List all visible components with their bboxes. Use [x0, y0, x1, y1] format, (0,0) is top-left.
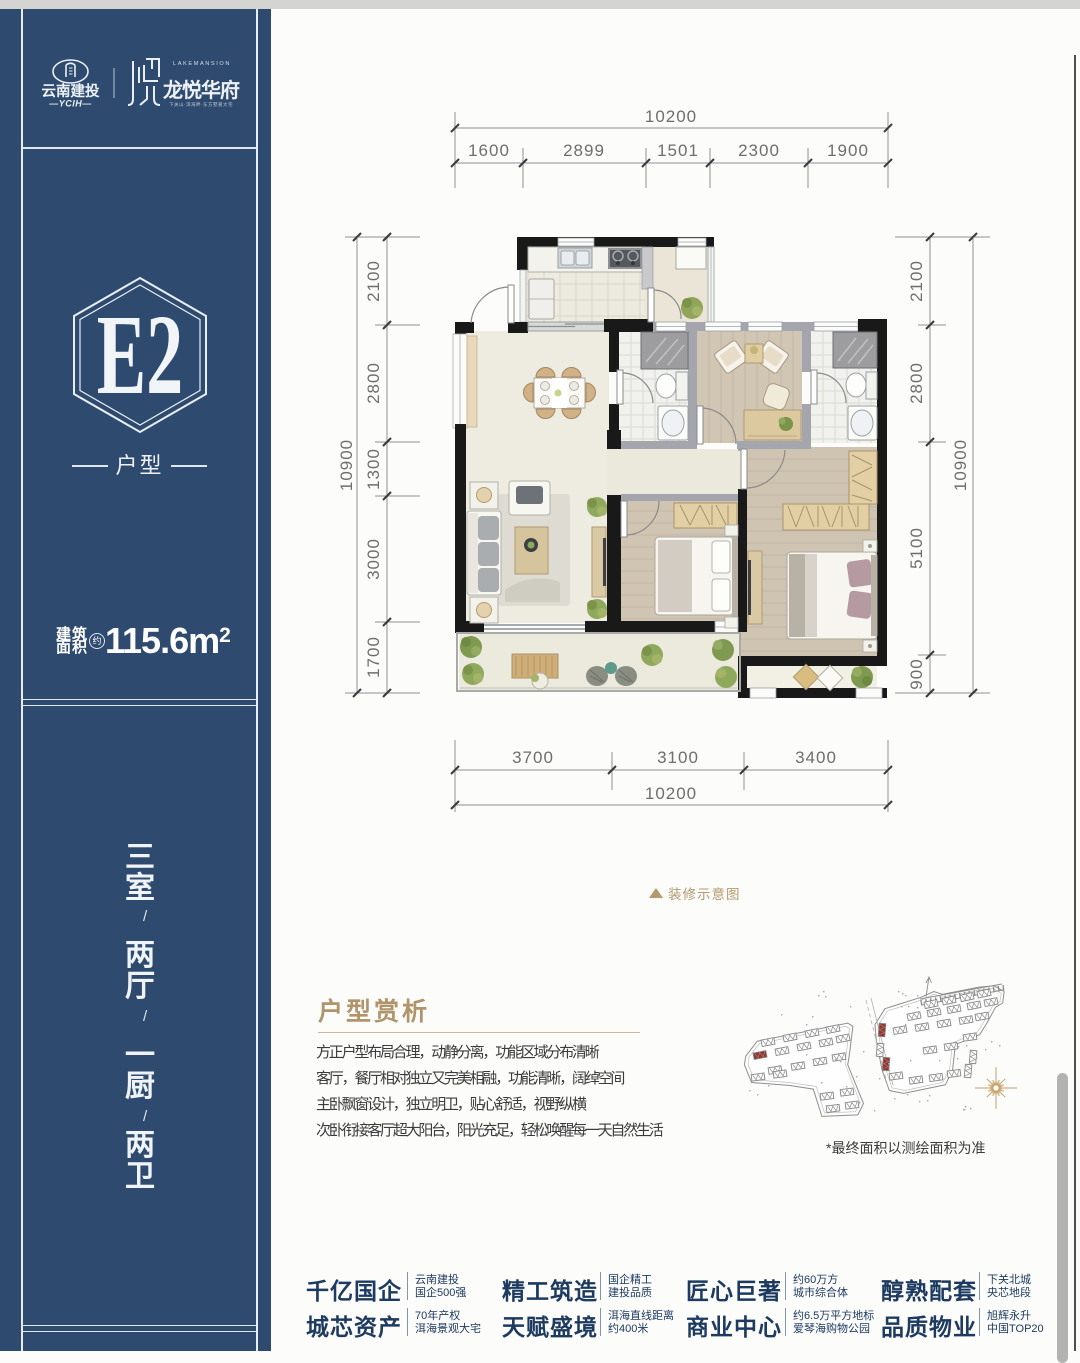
svg-text:3700: 3700	[512, 748, 554, 767]
svg-text:2100: 2100	[364, 260, 383, 302]
svg-text:10900: 10900	[337, 439, 356, 491]
svg-text:1700: 1700	[364, 636, 383, 678]
svg-text:10200: 10200	[645, 107, 697, 126]
svg-text:1600: 1600	[468, 141, 510, 160]
svg-text:3100: 3100	[657, 748, 699, 767]
svg-text:2899: 2899	[563, 141, 605, 160]
svg-text:2100: 2100	[907, 260, 926, 302]
svg-text:10200: 10200	[645, 784, 697, 803]
svg-text:1900: 1900	[827, 141, 869, 160]
svg-text:3400: 3400	[795, 748, 837, 767]
svg-text:1300: 1300	[364, 448, 383, 490]
svg-text:2300: 2300	[738, 141, 780, 160]
svg-text:2800: 2800	[907, 362, 926, 404]
svg-text:3000: 3000	[364, 538, 383, 580]
svg-text:900: 900	[907, 658, 926, 689]
svg-text:5100: 5100	[907, 527, 926, 569]
svg-text:10900: 10900	[951, 439, 970, 491]
svg-text:2800: 2800	[364, 362, 383, 404]
svg-text:1501: 1501	[657, 141, 699, 160]
